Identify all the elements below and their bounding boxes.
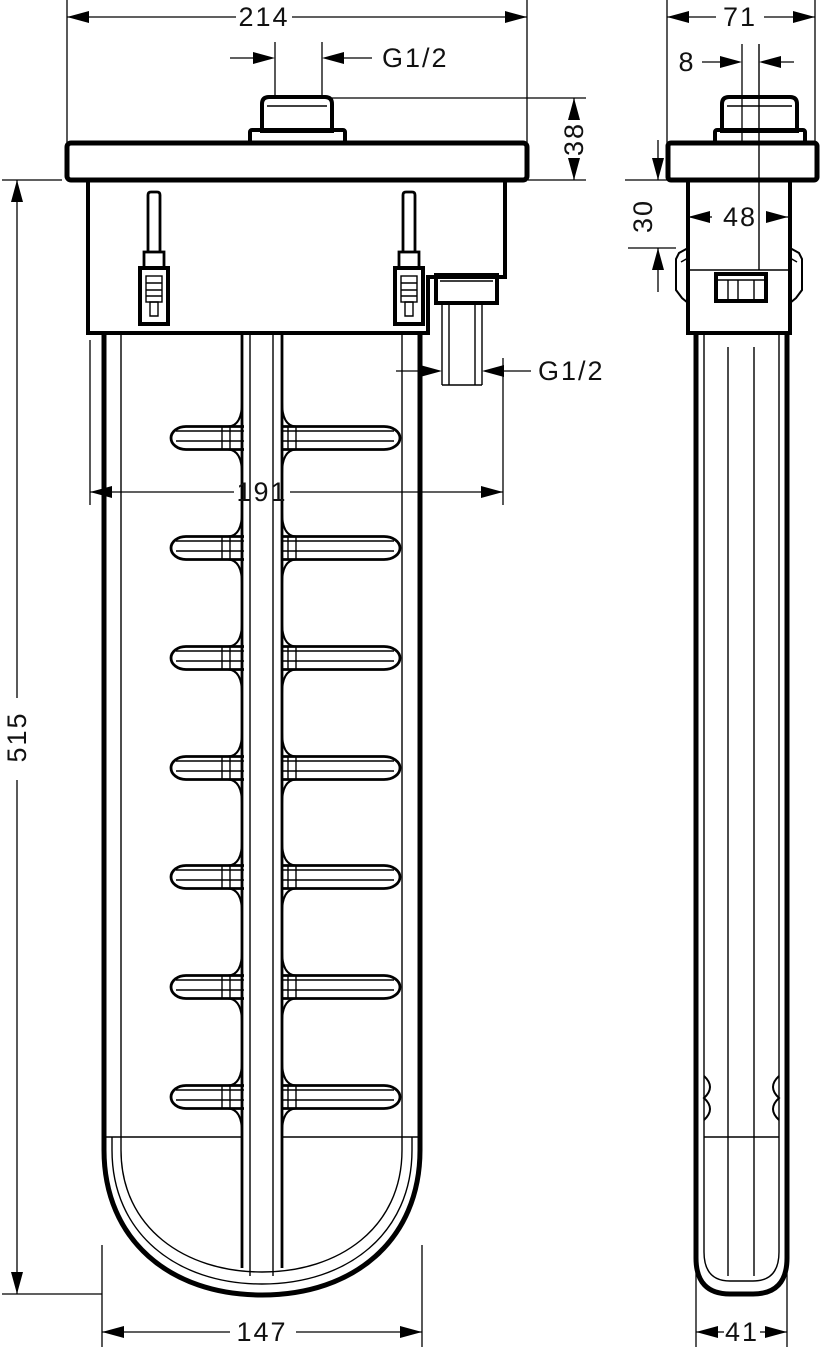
front-outlet-fitting xyxy=(436,275,497,385)
hose-loop-blade xyxy=(288,866,296,889)
hose-loop-blade xyxy=(171,647,244,670)
dim-label-30: 30 xyxy=(628,199,658,233)
hose-loop-blade xyxy=(281,651,394,661)
hose-loop-blade xyxy=(176,541,244,551)
dim-label-214: 214 xyxy=(238,2,289,32)
hose-loop-blade xyxy=(222,427,230,450)
hose-loop-blade xyxy=(288,647,296,670)
hose-loop-blade xyxy=(171,427,244,450)
hose-loop-blade xyxy=(288,757,296,780)
dim-label-8: 8 xyxy=(678,47,695,77)
dim-front-thread-top: G1/2 xyxy=(230,42,449,95)
hose-loop-blade xyxy=(288,537,296,560)
hose-loop-blade xyxy=(176,761,244,771)
hose-loop-blade xyxy=(282,622,296,694)
dim-side-bottom-depth: 41 xyxy=(696,1248,787,1347)
hose-loop-blade xyxy=(176,1090,244,1100)
hose-loop-blade xyxy=(282,841,296,913)
hose-loop-blade xyxy=(288,976,296,999)
hose-loop-blade xyxy=(281,431,394,441)
hose-loop-blade xyxy=(281,1086,400,1109)
dim-label-g12-outlet: G1/2 xyxy=(538,356,605,386)
dim-front-rim-height: 38 xyxy=(332,98,589,180)
dim-side-box-depth: 48 xyxy=(688,202,788,232)
front-flange xyxy=(67,143,527,180)
dim-front-body-width: 191 xyxy=(90,340,503,507)
hose-loop-blade xyxy=(222,1086,230,1109)
hose-loop-blade xyxy=(222,866,230,889)
hose-loop-blade xyxy=(281,647,400,670)
side-body-shaft xyxy=(696,333,787,1294)
hose-loop-blade xyxy=(176,870,244,880)
hose-loop-blade xyxy=(171,757,244,780)
side-housing-box xyxy=(688,44,790,333)
hose-loop-blade xyxy=(288,427,296,450)
dimensional-drawing: 214 G1/2 38 G1/2 191 xyxy=(0,0,820,1352)
hose-loop-blade xyxy=(222,757,230,780)
dim-front-outlet-thread: G1/2 xyxy=(396,356,605,386)
hose-loop-rows xyxy=(171,402,400,1133)
side-button xyxy=(715,97,805,143)
dim-label-147: 147 xyxy=(236,1317,287,1347)
hose-loop-blade xyxy=(281,427,400,450)
dim-label-41: 41 xyxy=(725,1317,759,1347)
hose-loop-blade xyxy=(176,980,244,990)
hose-loop-blade xyxy=(282,1061,296,1133)
hose-loop-blade xyxy=(222,537,230,560)
hose-loop-blade xyxy=(282,402,296,474)
hose-loop-blade xyxy=(281,537,400,560)
hose-loop-blade xyxy=(281,541,394,551)
hose-loop-blade xyxy=(281,866,400,889)
dim-label-71: 71 xyxy=(723,2,757,32)
hose-loop-blade xyxy=(281,976,400,999)
technical-drawing-page: 214 G1/2 38 G1/2 191 xyxy=(0,0,820,1352)
hose-loop-blade xyxy=(281,1090,394,1100)
hose-loop-blade xyxy=(176,651,244,661)
hose-loop-blade xyxy=(171,537,244,560)
dim-label-48: 48 xyxy=(723,202,757,232)
hose-loop-blade xyxy=(288,1086,296,1109)
dim-front-body-height: 515 xyxy=(2,180,102,1294)
hose-loop-blade xyxy=(222,976,230,999)
side-hose-nut xyxy=(716,274,766,301)
hose-loop-blade xyxy=(222,647,230,670)
dim-label-g12-top: G1/2 xyxy=(382,43,449,73)
hose-loop-blade xyxy=(171,1086,244,1109)
front-hose-channel xyxy=(242,333,282,1276)
hose-loop-blade xyxy=(281,761,394,771)
front-button xyxy=(250,97,345,143)
front-mounting-pin-right xyxy=(395,192,423,324)
front-view: 214 G1/2 38 G1/2 191 xyxy=(2,0,605,1347)
hose-loop-blade xyxy=(171,976,244,999)
hose-loop-blade xyxy=(281,980,394,990)
hose-loop-blade xyxy=(281,870,394,880)
hose-loop-blade xyxy=(176,431,244,441)
hose-loop-blade xyxy=(282,732,296,804)
side-flange xyxy=(668,143,817,180)
hose-loop-blade xyxy=(282,512,296,584)
dim-label-38: 38 xyxy=(559,122,589,156)
dim-label-515: 515 xyxy=(2,711,32,762)
front-mounting-pin-left xyxy=(140,192,168,324)
dim-front-flange-width: 214 xyxy=(67,0,527,143)
dim-label-191: 191 xyxy=(236,477,287,507)
hose-loop-blade xyxy=(282,951,296,1023)
side-view: 71 8 30 48 41 xyxy=(625,0,817,1347)
hose-loop-blade xyxy=(281,757,400,780)
hose-loop-blade xyxy=(171,866,244,889)
